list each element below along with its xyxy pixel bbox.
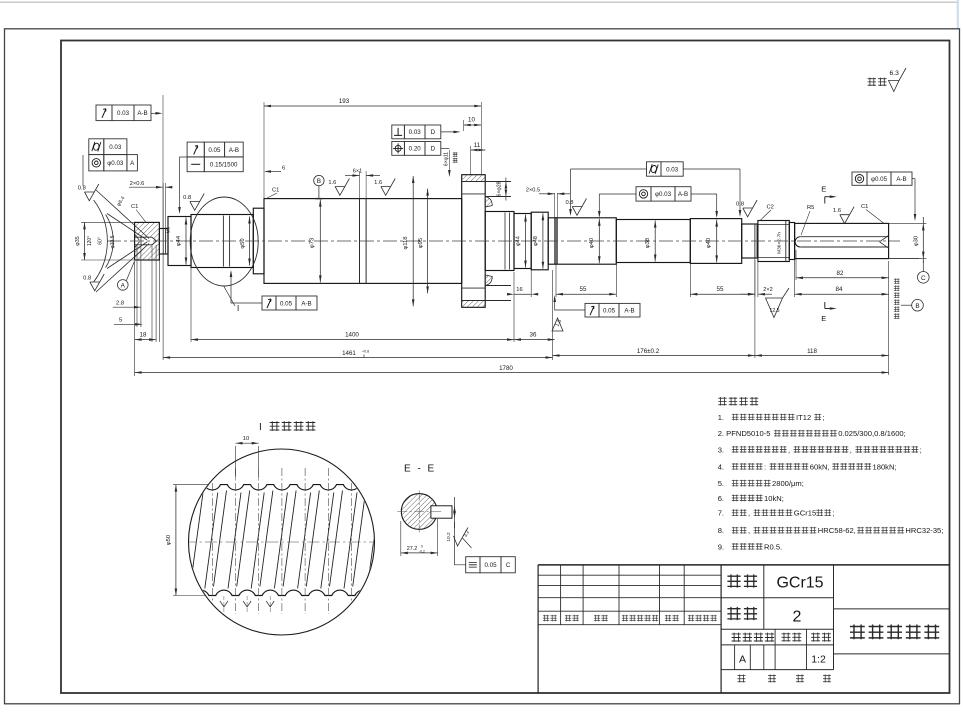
svg-text:;: ;: [822, 413, 824, 422]
svg-text:0.20: 0.20: [409, 146, 422, 153]
svg-text:0.05: 0.05: [484, 562, 497, 569]
svg-text:,: ,: [850, 445, 852, 454]
svg-text:55: 55: [580, 286, 587, 293]
svg-text:9.: 9.: [718, 542, 724, 551]
svg-text:6.: 6.: [718, 494, 724, 503]
svg-text:5: 5: [119, 318, 122, 324]
svg-text:0: 0: [363, 354, 365, 358]
svg-text:12.5: 12.5: [769, 308, 779, 314]
svg-text:36: 36: [530, 332, 537, 339]
svg-text:D: D: [431, 146, 436, 153]
svg-text:2×0.5: 2×0.5: [526, 188, 540, 194]
svg-text:4.: 4.: [718, 462, 724, 471]
svg-text:82: 82: [837, 270, 844, 277]
svg-text:A-B: A-B: [137, 110, 147, 117]
svg-text:A-B: A-B: [624, 308, 634, 315]
svg-text:2: 2: [793, 609, 802, 626]
svg-text:φ40: φ40: [706, 238, 712, 248]
svg-text:0.8: 0.8: [83, 276, 91, 282]
svg-text:0.05: 0.05: [603, 308, 616, 315]
svg-text:18: 18: [140, 332, 147, 339]
svg-text:2.8: 2.8: [116, 301, 124, 307]
svg-text:+0.8: +0.8: [362, 350, 369, 354]
svg-text:C: C: [506, 562, 511, 569]
svg-text:,: ,: [748, 526, 750, 535]
svg-text:1.6: 1.6: [328, 180, 336, 186]
svg-text:10.2: 10.2: [446, 532, 452, 542]
svg-text:16: 16: [516, 287, 522, 293]
svg-text:0.03: 0.03: [117, 110, 130, 117]
svg-text:φ0.03: φ0.03: [107, 160, 124, 167]
svg-text:176±0.2: 176±0.2: [637, 348, 660, 355]
svg-text:φ44: φ44: [176, 235, 182, 246]
svg-text:0.05: 0.05: [208, 147, 221, 154]
svg-text:φ44: φ44: [516, 236, 522, 246]
svg-text:E - E: E - E: [404, 464, 436, 475]
svg-text:3.: 3.: [718, 445, 724, 454]
svg-text:;: ;: [833, 509, 835, 518]
svg-text:C1: C1: [272, 188, 279, 194]
svg-text:60kN,: 60kN,: [810, 462, 830, 471]
svg-text:R5: R5: [807, 205, 814, 211]
svg-text:C1: C1: [131, 204, 138, 210]
svg-text:A-B: A-B: [301, 300, 311, 307]
svg-text:0.03: 0.03: [109, 144, 122, 151]
svg-text:I: I: [237, 304, 239, 313]
svg-text:φ73: φ73: [309, 238, 315, 248]
svg-text:φ0.05: φ0.05: [871, 176, 888, 183]
svg-text:C1: C1: [861, 204, 868, 210]
svg-text:1400: 1400: [345, 332, 359, 339]
svg-text:6×φ28: 6×φ28: [497, 181, 503, 196]
svg-text:A: A: [739, 654, 746, 666]
svg-text:11: 11: [474, 142, 481, 149]
svg-text:2×0.6: 2×0.6: [130, 181, 145, 187]
svg-text:A-B: A-B: [896, 176, 906, 183]
svg-text:120°: 120°: [87, 236, 93, 246]
svg-text:2800/μm;: 2800/μm;: [772, 479, 804, 488]
svg-text:118: 118: [807, 348, 817, 355]
svg-text:R0.5.: R0.5.: [764, 542, 782, 551]
svg-text:A-B: A-B: [678, 191, 688, 198]
svg-text:,: ,: [748, 509, 750, 518]
svg-text:0.8: 0.8: [183, 195, 191, 201]
svg-text:1.6: 1.6: [374, 180, 382, 186]
svg-text:27.2: 27.2: [407, 546, 418, 552]
svg-text:1780: 1780: [499, 365, 513, 372]
svg-text:D: D: [431, 129, 436, 136]
svg-text:1:2: 1:2: [811, 654, 826, 666]
svg-text:M6: M6: [166, 226, 171, 233]
svg-text:A: A: [121, 283, 126, 290]
svg-text:2×2: 2×2: [763, 287, 773, 293]
svg-text:B: B: [317, 178, 321, 185]
svg-text:0: 0: [421, 545, 423, 549]
svg-text:0.03: 0.03: [666, 166, 679, 173]
svg-text:,: ,: [788, 445, 790, 454]
svg-text:φ40: φ40: [589, 238, 595, 248]
svg-text:B: B: [915, 303, 919, 310]
svg-text:E: E: [821, 314, 826, 323]
svg-text:1.: 1.: [718, 413, 724, 422]
svg-text:6×1: 6×1: [353, 169, 363, 175]
svg-text:10kN;: 10kN;: [764, 494, 784, 503]
svg-text:φ95: φ95: [418, 238, 424, 248]
svg-text:60°: 60°: [98, 237, 104, 245]
svg-text:φ50: φ50: [240, 238, 246, 248]
svg-text::: :: [764, 462, 766, 471]
svg-text:1.6: 1.6: [833, 208, 841, 214]
svg-text:I: I: [259, 422, 262, 433]
svg-text:0.15/1500: 0.15/1500: [210, 162, 238, 169]
svg-text:φ50: φ50: [166, 535, 172, 545]
svg-text:φ10.5: φ10.5: [110, 235, 116, 248]
svg-text:φ118: φ118: [403, 236, 409, 249]
svg-text:HRC58-62,: HRC58-62,: [818, 526, 856, 535]
svg-text:φ38: φ38: [645, 238, 651, 248]
svg-text:φ48: φ48: [533, 236, 539, 246]
svg-text:84: 84: [836, 286, 843, 293]
svg-text:φ35: φ35: [75, 236, 81, 246]
svg-text:A-B: A-B: [229, 147, 239, 154]
svg-text:6×φ11: 6×φ11: [444, 152, 450, 166]
svg-text:GCr15: GCr15: [794, 509, 816, 518]
svg-text:0.025/300,0.8/1600;: 0.025/300,0.8/1600;: [838, 429, 906, 438]
svg-text:10: 10: [243, 436, 249, 442]
svg-text:M36×2-7h: M36×2-7h: [777, 232, 783, 254]
svg-text:-0.2: -0.2: [419, 549, 425, 553]
svg-text:6.3: 6.3: [890, 70, 900, 77]
svg-text:5.: 5.: [718, 479, 724, 488]
svg-text:0.03: 0.03: [409, 129, 422, 136]
svg-text:C: C: [921, 275, 926, 282]
svg-text:;: ;: [920, 445, 922, 454]
svg-text:φ0.03: φ0.03: [655, 191, 672, 198]
svg-text:C2: C2: [767, 205, 774, 211]
svg-text:10: 10: [468, 117, 475, 124]
svg-text:φ30: φ30: [913, 236, 919, 246]
svg-text:180kN;: 180kN;: [873, 462, 897, 471]
svg-text:0.8: 0.8: [565, 200, 573, 206]
svg-text:HRC32-35;: HRC32-35;: [905, 526, 943, 535]
svg-text:6: 6: [282, 166, 285, 172]
svg-text:E: E: [821, 185, 826, 194]
svg-text:2. PFND5010-5: 2. PFND5010-5: [718, 429, 771, 438]
svg-text:IT12: IT12: [796, 413, 811, 422]
svg-text:0.05: 0.05: [280, 300, 293, 307]
svg-text:GCr15: GCr15: [776, 575, 823, 592]
svg-text:193: 193: [339, 98, 350, 105]
svg-text:1461: 1461: [342, 350, 356, 357]
svg-text:7.: 7.: [718, 509, 724, 518]
svg-text:8.: 8.: [718, 526, 724, 535]
svg-text:0.8: 0.8: [78, 186, 86, 192]
svg-text:55: 55: [717, 286, 724, 293]
